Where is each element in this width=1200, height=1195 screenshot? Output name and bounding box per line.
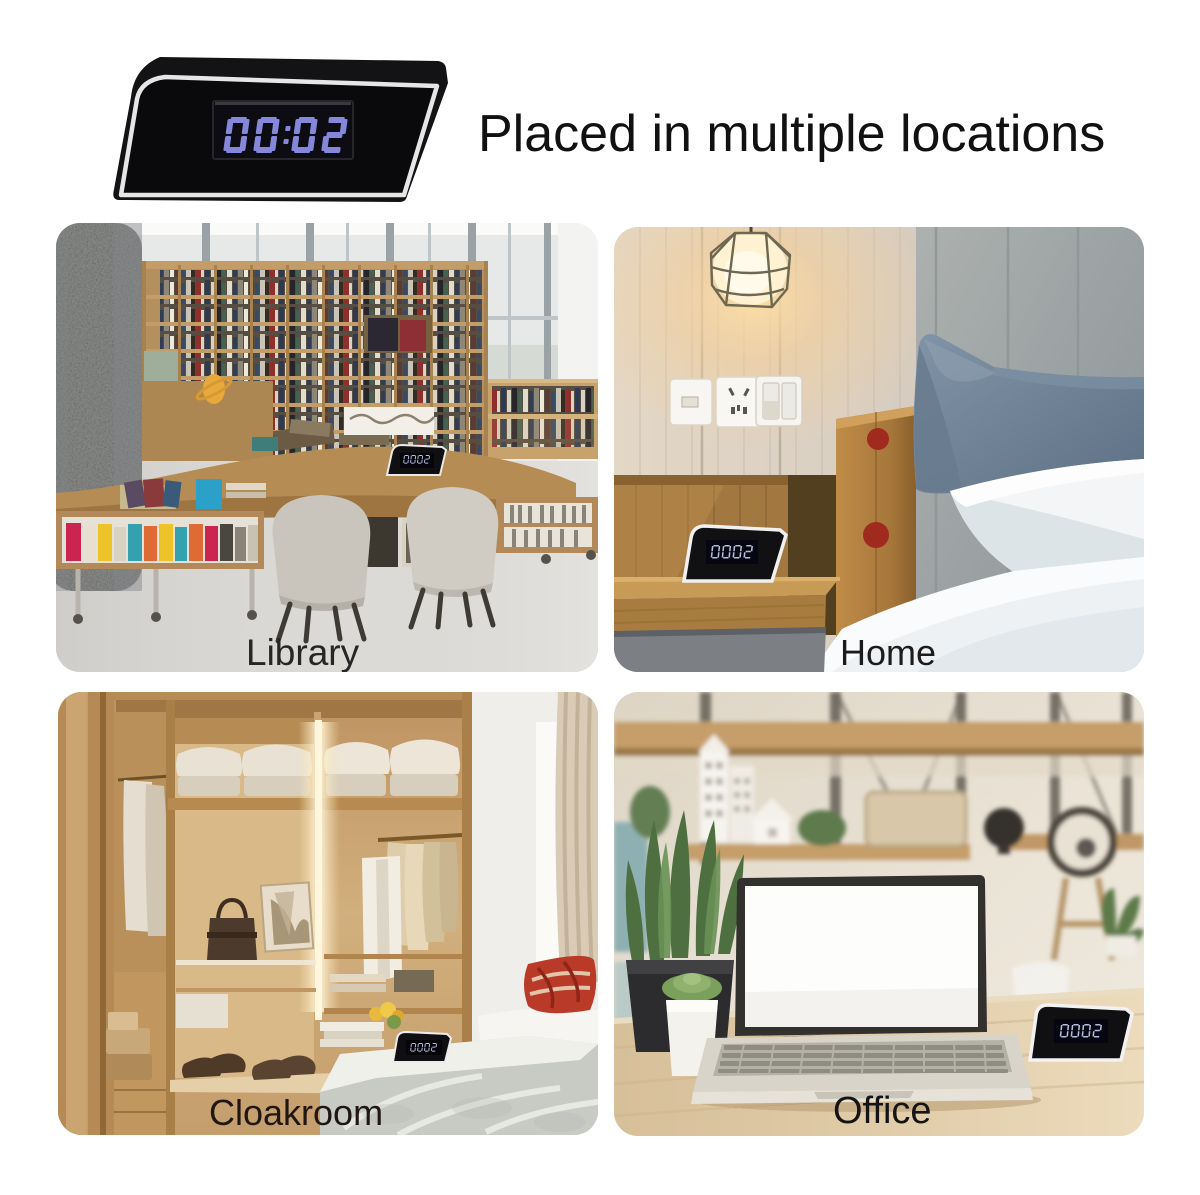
svg-text:Home: Home (840, 632, 936, 672)
svg-text:Library: Library (246, 632, 360, 672)
svg-text:Cloakroom: Cloakroom (209, 1092, 383, 1133)
svg-text:Office: Office (833, 1090, 932, 1132)
